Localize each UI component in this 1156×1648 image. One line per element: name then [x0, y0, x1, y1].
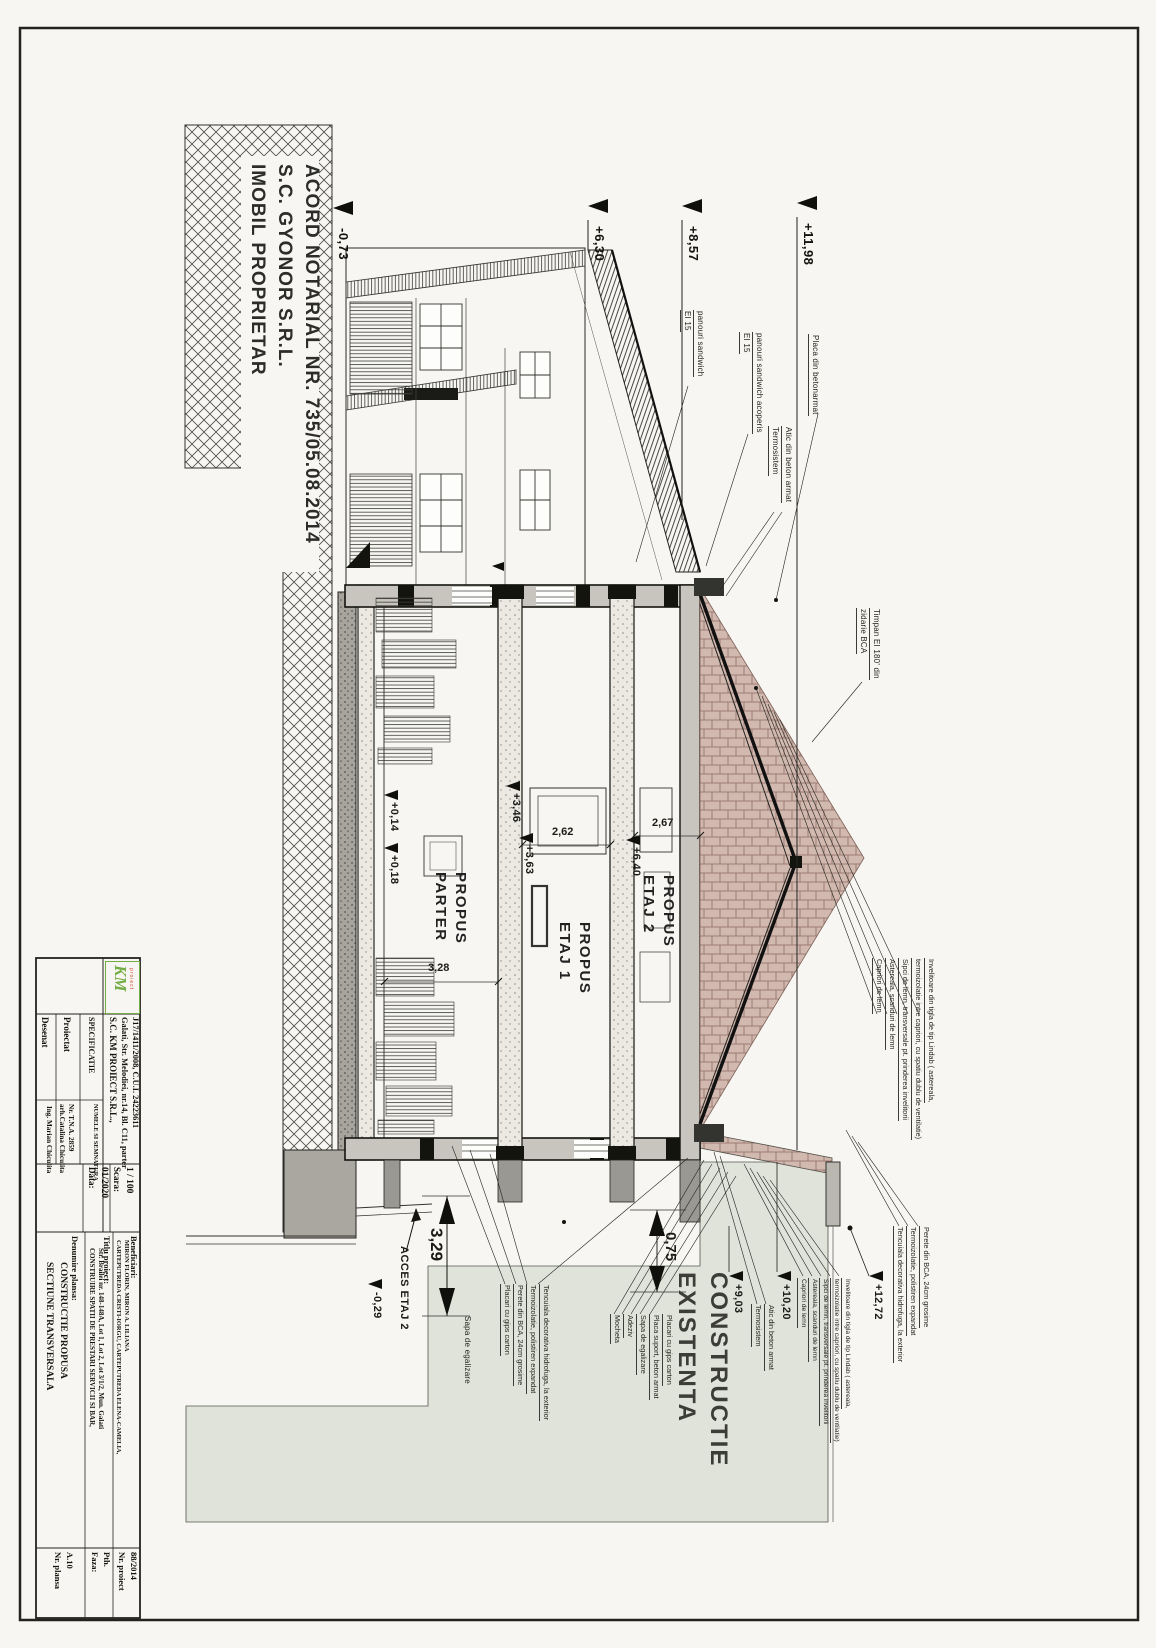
level-363: +3,63 — [523, 845, 535, 874]
room-etaj2: ETAJ 2 PROPUS — [640, 875, 677, 947]
dim-262: 2,62 — [552, 826, 573, 838]
panouri-sandwich-label: panouri sandwich EI 15 — [680, 310, 706, 377]
roof-layers-stack-lower: Invelitoare din tigla de tip Lindab ( as… — [797, 1278, 852, 1443]
placa-label: Placa din betonarmat — [808, 334, 821, 416]
timpan-label: Timpan EI 180' din zidarie BCA — [856, 608, 882, 680]
room-etaj1: ETAJ 1 PROPUS — [556, 922, 593, 994]
denumire-content: SECTIUNE TRANSVERSALA CONSTRUCTIE PROPUS… — [44, 1262, 68, 1390]
bca-layers-stack: Perete din BCA, 24cm grosime Termoizolat… — [893, 1226, 932, 1363]
dim-075: 0,75 — [662, 1232, 679, 1261]
roof-layers-stack-upper: Invelitoare din tigla de tip Lindab ( as… — [872, 958, 937, 1140]
proiectat-name: arh.Catalina Chiculita Nr. T.N.A. 2859 — [58, 1104, 75, 1173]
dim-267: 2,67 — [652, 817, 673, 829]
property-note: IMOBIL PROPRIETAR S.C. GYONOR S.R.L. ACO… — [246, 164, 322, 544]
denumire-header: Denumire plansa: — [70, 1236, 80, 1301]
nr-plansa-cell: Nr. plansa A.10 — [53, 1552, 75, 1589]
beneficiari-content: CARTEPUTREDA CRISTI-IORGU, CARTEPUTREDA … — [115, 1240, 130, 1454]
level-minus029: -0,29 — [371, 1292, 383, 1319]
sapa-label: Sapa de egalizare — [463, 1316, 472, 1384]
property-note-line: ACORD NOTARIAL NR. 735/05.08.2014 — [300, 164, 322, 544]
level-1020: +10,20 — [780, 1284, 792, 1320]
atic-label-upper: Atic din beton armat Termosistem — [768, 426, 794, 503]
level-1198: +11,98 — [801, 223, 816, 265]
access-label: ACCES ETAJ 2 — [398, 1246, 410, 1330]
level-640: +6,40 — [630, 847, 642, 876]
level-346: +3,46 — [510, 793, 522, 822]
proiectat-label: Proiectat — [62, 1017, 72, 1052]
km-proiect-logo: KM proiect — [105, 961, 140, 1014]
data-cell: Data: 01/2020 — [87, 1167, 109, 1198]
atic-label-lower: Atic din beton armat Termosistem — [751, 1304, 777, 1371]
level-018: +0,18 — [388, 855, 400, 884]
dim-328: 3,28 — [428, 962, 449, 974]
level-857: +8,57 — [686, 226, 701, 261]
property-note-line: IMOBIL PROPRIETAR — [246, 164, 268, 376]
dim-329: 3,29 — [426, 1228, 446, 1261]
beneficiari-header: Beneficiari: — [129, 1236, 139, 1278]
wall-layers-stack: Placari cu gips carton Perete din BCA, 2… — [500, 1284, 552, 1421]
desenat-label: Desenat — [40, 1017, 50, 1048]
scanned-drawing-page: IMOBIL PROPRIETAR S.C. GYONOR S.R.L. ACO… — [0, 0, 1156, 1648]
property-note-line: S.C. GYONOR S.R.L. — [273, 164, 295, 368]
nr-proiect-cell: Nr. proiect 88/2014 — [117, 1552, 139, 1591]
panouri-acoperis-label: panouri sandwich acoperis EI 15 — [739, 332, 765, 434]
level-903: +9,03 — [732, 1284, 744, 1313]
scara-cell: Scara: 1 / 100 — [112, 1167, 134, 1193]
existing-construction-label: CONSTRUCTIE EXISTENTA — [672, 1272, 732, 1467]
text-layer: IMOBIL PROPRIETAR S.C. GYONOR S.R.L. ACO… — [0, 0, 1156, 1648]
company-block: S.C. KM PROIECT S.R.L., Galati, Str. Mel… — [108, 1017, 140, 1169]
level-minus073: -0,73 — [336, 228, 351, 260]
floor-layers-stack: Mocheta Adeziv Sapa de egalizare Placa s… — [610, 1314, 675, 1400]
desenat-name: Ing. Marian Chiculita — [45, 1106, 53, 1173]
level-1272: +12,72 — [872, 1284, 884, 1320]
titlu-content: CONSTRUIRE SPATII DE PRESTARI SERVICII S… — [88, 1248, 105, 1429]
room-parter: PARTER PROPUS — [432, 872, 469, 944]
level-630: +6,30 — [592, 226, 607, 261]
spec-header: SPECIFICATIE — [87, 1017, 96, 1073]
faza-cell: Faza: Pth. — [90, 1552, 112, 1572]
level-014: +0,14 — [388, 802, 400, 831]
